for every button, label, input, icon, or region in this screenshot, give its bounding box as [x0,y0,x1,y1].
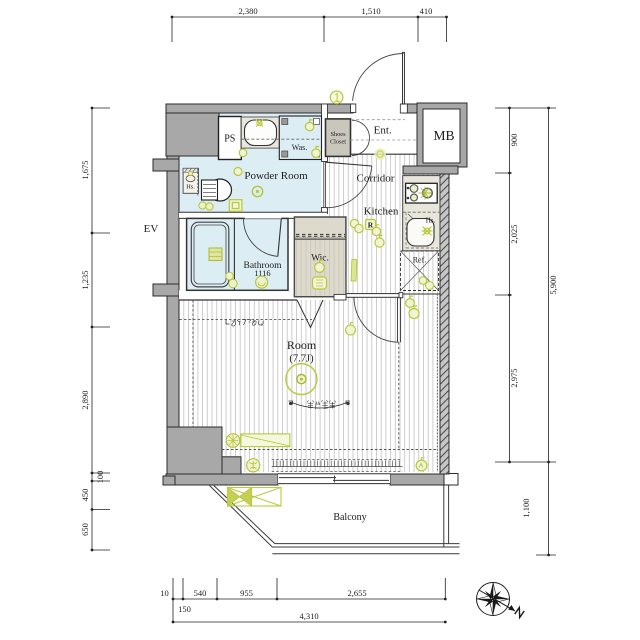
svg-text:MB: MB [433,128,454,143]
svg-text:Hs.: Hs. [186,184,195,191]
svg-text:955: 955 [240,588,253,598]
svg-text:2,975: 2,975 [509,368,519,387]
svg-text:10: 10 [160,588,169,598]
svg-text:1,235: 1,235 [80,270,90,289]
svg-text:150: 150 [178,604,191,614]
svg-text:Ref.: Ref. [413,256,427,265]
svg-text:900: 900 [509,134,519,147]
svg-text:650: 650 [80,523,90,536]
svg-text:Hs.: Hs. [426,217,436,225]
svg-text:Balcony: Balcony [333,512,366,523]
svg-text:1,100: 1,100 [521,498,531,517]
svg-text:Was.: Was. [292,143,308,152]
svg-text:2,025: 2,025 [509,224,519,243]
svg-text:1,675: 1,675 [80,160,90,179]
svg-text:PS: PS [224,134,235,145]
svg-text:Room: Room [287,338,317,352]
svg-text:450: 450 [80,489,90,502]
svg-text:2,380: 2,380 [238,6,257,16]
svg-text:Kitchen: Kitchen [364,206,399,218]
svg-text:Corridor: Corridor [357,173,395,185]
svg-text:2,655: 2,655 [347,588,366,598]
svg-text:Closet: Closet [330,139,346,146]
svg-text:Powder Room: Powder Room [244,170,308,182]
svg-text:2,890: 2,890 [80,390,90,409]
svg-text:410: 410 [420,6,433,16]
svg-text:(7.7J): (7.7J) [289,354,314,365]
svg-text:Shoes: Shoes [330,131,346,138]
svg-text:EV: EV [144,223,159,235]
svg-text:Ent.: Ent. [374,125,392,137]
svg-text:4,310: 4,310 [299,611,318,621]
svg-text:5,900: 5,900 [548,275,558,294]
svg-text:R: R [368,221,374,230]
svg-text:100: 100 [95,471,105,484]
svg-text:540: 540 [194,588,207,598]
svg-text:1,510: 1,510 [361,6,380,16]
